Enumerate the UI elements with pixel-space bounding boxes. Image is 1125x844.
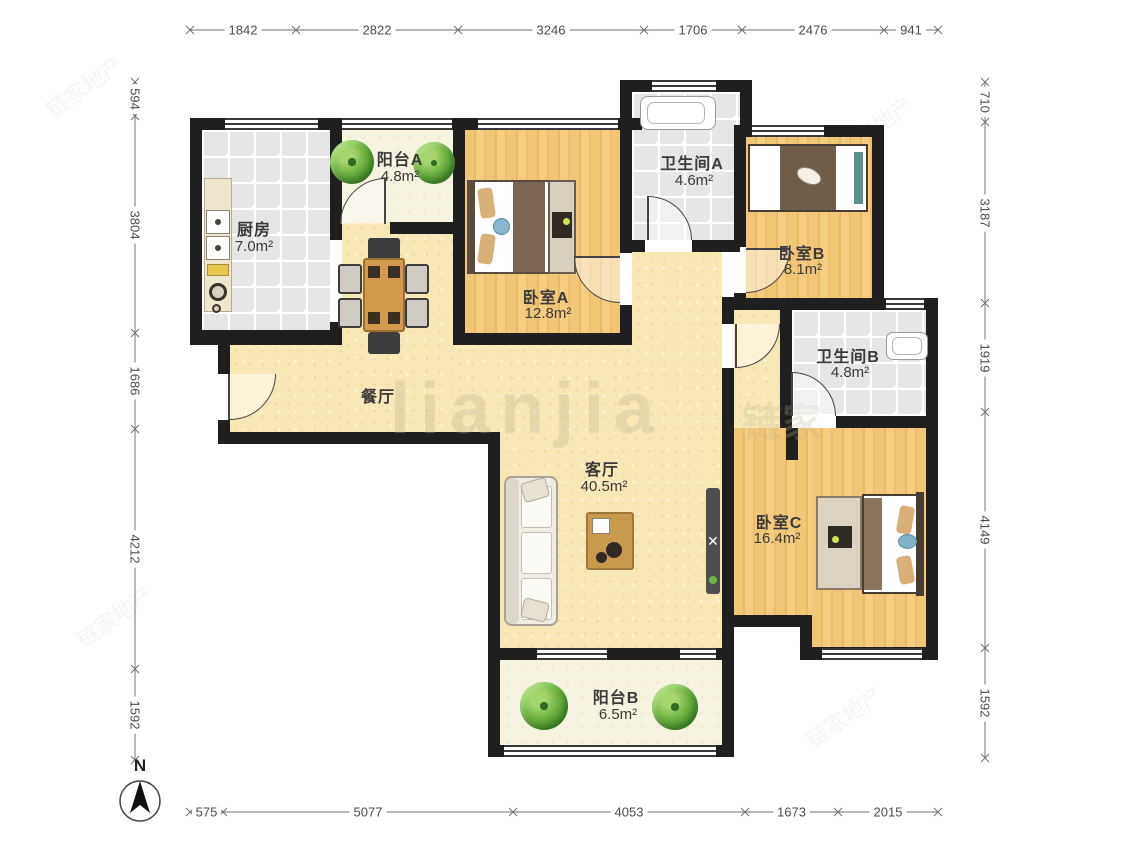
dimension-label: 5077 — [350, 805, 387, 820]
place-setting — [388, 266, 400, 278]
sofa-cushion — [521, 532, 552, 574]
wall-segment — [190, 330, 342, 345]
dining-chair — [338, 298, 362, 328]
dimension-label: 575 — [192, 805, 222, 820]
dining-chair — [405, 298, 429, 328]
dining-chair — [338, 264, 362, 294]
dimension-label: 1592 — [128, 696, 143, 733]
dimension-label: 4149 — [978, 512, 993, 549]
window — [504, 745, 716, 757]
watermark-stamp: 链家地产 — [39, 48, 129, 125]
door-leaf — [647, 196, 649, 240]
wall-segment — [722, 615, 812, 627]
dimension-label: 1706 — [675, 23, 712, 38]
room-area-balcony-a: 4.8m² — [381, 168, 419, 185]
room-area-kitchen: 7.0m² — [235, 238, 273, 255]
wall-segment — [488, 432, 500, 757]
plant-icon — [520, 682, 568, 730]
floor-plan: lianjia 链家 链家地产 链家地产 链家地产 链家地产 — [0, 0, 1125, 844]
door-leaf — [574, 256, 620, 258]
wall-segment — [218, 420, 230, 444]
wall-segment — [872, 125, 884, 310]
place-setting — [368, 312, 380, 324]
room-area-bathroom-a: 4.6m² — [675, 172, 713, 189]
dimension-label: 1686 — [128, 363, 143, 400]
room-name-bathroom-a: 卫生间A — [660, 150, 724, 174]
plant-icon — [652, 684, 698, 730]
room-name-kitchen: 厨房 — [237, 216, 271, 240]
plant-icon — [330, 140, 374, 184]
sliding-door — [537, 648, 607, 660]
kitchen-appliance — [207, 264, 229, 276]
round-pillow — [493, 218, 510, 235]
wall-segment — [722, 297, 734, 324]
watermark-logo: lianjia — [390, 368, 664, 450]
room-name-dining: 餐厅 — [361, 383, 395, 407]
sink-drain — [215, 245, 221, 251]
wall-segment — [620, 80, 632, 253]
sliding-door — [680, 648, 716, 660]
bed-a-headboard — [467, 180, 475, 274]
dimension-label: 3804 — [128, 206, 143, 243]
room-name-balcony-a: 阳台A — [377, 146, 424, 170]
wall-segment — [722, 627, 734, 757]
room-area-bedroom-c: 16.4m² — [754, 530, 801, 547]
dining-chair — [405, 264, 429, 294]
wall-segment — [692, 240, 740, 252]
wall-segment — [620, 240, 645, 252]
window — [886, 298, 924, 310]
dimension-label: 1592 — [978, 685, 993, 722]
dimension-label: 1673 — [773, 805, 810, 820]
dimension-label: 2822 — [359, 23, 396, 38]
wall-segment — [190, 118, 202, 345]
dimension-label: 1919 — [978, 339, 993, 376]
dimension-label: 4212 — [128, 531, 143, 568]
kettle — [596, 552, 607, 563]
dimension-label: 3187 — [978, 194, 993, 231]
dining-chair — [368, 238, 400, 260]
watermark-stamp: 链家地产 — [799, 678, 889, 755]
window — [478, 118, 618, 130]
window — [342, 118, 452, 130]
room-area-bedroom-a: 12.8m² — [525, 305, 572, 322]
dimension-label: 2476 — [795, 23, 832, 38]
stove-burner — [209, 283, 227, 301]
dining-chair — [368, 332, 400, 354]
door-leaf — [735, 324, 737, 368]
wall-segment — [734, 125, 746, 247]
tea-tray — [592, 518, 610, 534]
dimension-label: 4053 — [611, 805, 648, 820]
tv-glyph: ✕ — [707, 528, 719, 554]
wall-segment — [453, 333, 632, 345]
stove-burner — [212, 304, 221, 313]
sofa-back — [506, 478, 519, 624]
wall-segment — [836, 416, 938, 428]
dimension-label: 3246 — [533, 23, 570, 38]
room-area-bedroom-b: 8.1m² — [784, 261, 822, 278]
dimension-label: 1842 — [225, 23, 262, 38]
room-name-balcony-b: 阳台B — [593, 684, 640, 708]
wall-segment — [390, 222, 453, 234]
door-leaf — [791, 372, 793, 416]
watermark-stamp: 链家地产 — [69, 578, 159, 655]
window — [752, 125, 824, 137]
bed-c-blanket — [864, 498, 882, 590]
room-name-living: 客厅 — [585, 456, 619, 480]
wall-segment — [620, 305, 632, 345]
window — [225, 118, 318, 130]
sink-drain — [215, 219, 221, 225]
dimension-label: 710 — [978, 87, 993, 117]
room-area-balcony-b: 6.5m² — [599, 706, 637, 723]
place-setting — [368, 266, 380, 278]
place-setting — [388, 312, 400, 324]
wall-segment — [453, 118, 465, 345]
room-area-bathroom-b: 4.8m² — [831, 364, 869, 381]
wall-segment — [734, 293, 746, 310]
dimension-label: 2015 — [870, 805, 907, 820]
dimension-label: 594 — [128, 84, 143, 114]
tv-plant-dot — [709, 576, 717, 584]
window — [652, 80, 716, 92]
window — [822, 648, 922, 660]
tv-dot — [563, 218, 570, 225]
bed-c-headboard — [916, 492, 924, 596]
tv-dot — [832, 536, 839, 543]
bed-a-duvet — [513, 182, 545, 272]
kettle — [606, 542, 622, 558]
wardrobe-a-tv — [552, 212, 572, 238]
round-pillow — [898, 534, 917, 549]
bed-b-accent — [854, 152, 863, 204]
bathtub-a-inner — [647, 102, 705, 124]
room-area-living: 40.5m² — [581, 478, 628, 495]
bathtub-b-inner — [892, 337, 922, 355]
north-label: N — [134, 756, 146, 776]
dimension-label: 941 — [896, 23, 926, 38]
door-leaf — [228, 374, 230, 420]
wall-segment — [722, 368, 734, 627]
